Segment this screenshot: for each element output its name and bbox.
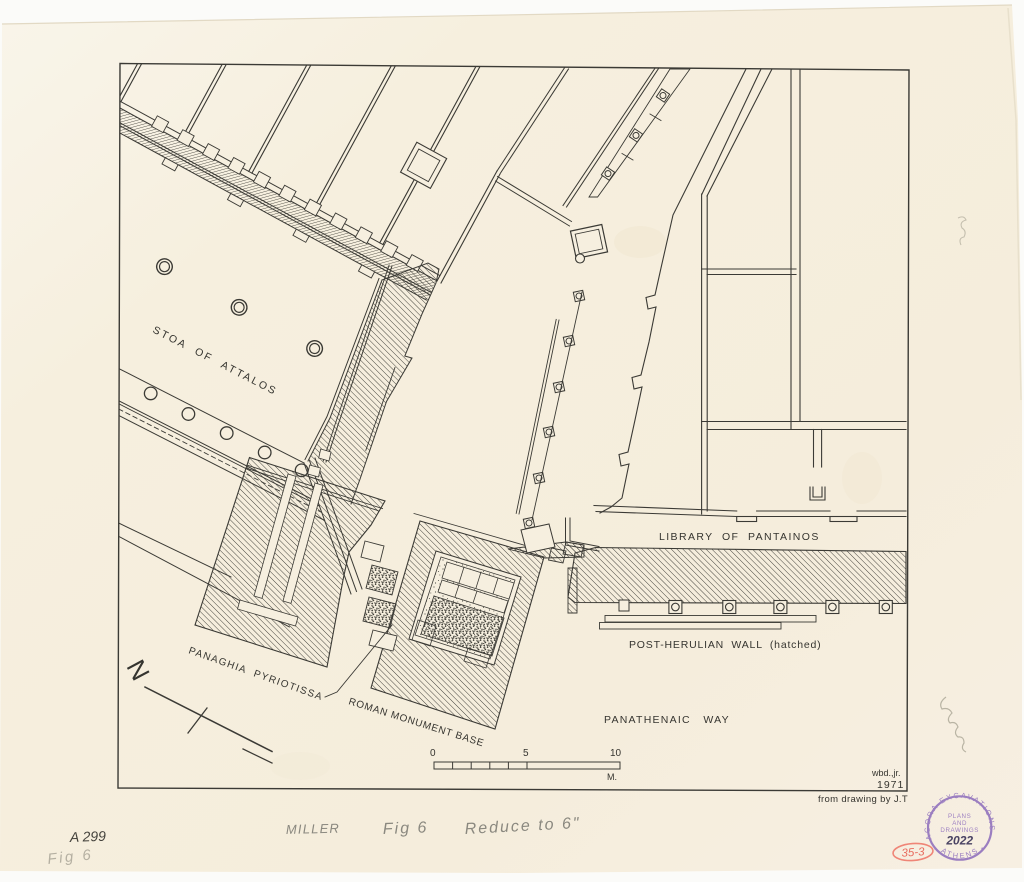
svg-text:M.: M. [607, 772, 617, 782]
svg-text:*: * [934, 847, 937, 854]
svg-text:PLANS: PLANS [948, 813, 971, 820]
svg-text:AND: AND [952, 820, 967, 827]
svg-text:A 299: A 299 [69, 828, 107, 845]
svg-text:from drawing by J.T: from drawing by J.T [818, 794, 908, 805]
svg-text:35-3: 35-3 [901, 846, 925, 860]
svg-text:2022: 2022 [945, 834, 973, 848]
svg-text:POST-HERULIAN WALL (hatched): POST-HERULIAN WALL (hatched) [629, 639, 821, 651]
svg-text:1971: 1971 [877, 779, 904, 791]
svg-text:10: 10 [610, 748, 622, 759]
svg-text:*: * [981, 847, 984, 854]
svg-text:LIBRARY OF PANTAINOS: LIBRARY OF PANTAINOS [659, 531, 820, 543]
svg-text:0: 0 [430, 748, 436, 759]
svg-text:PANATHENAIC WAY: PANATHENAIC WAY [604, 714, 730, 726]
svg-text:5: 5 [523, 748, 529, 759]
svg-text:Fig 6: Fig 6 [383, 819, 429, 838]
svg-text:MILLER: MILLER [286, 821, 341, 837]
svg-text:wbd.,jr.: wbd.,jr. [871, 768, 901, 778]
